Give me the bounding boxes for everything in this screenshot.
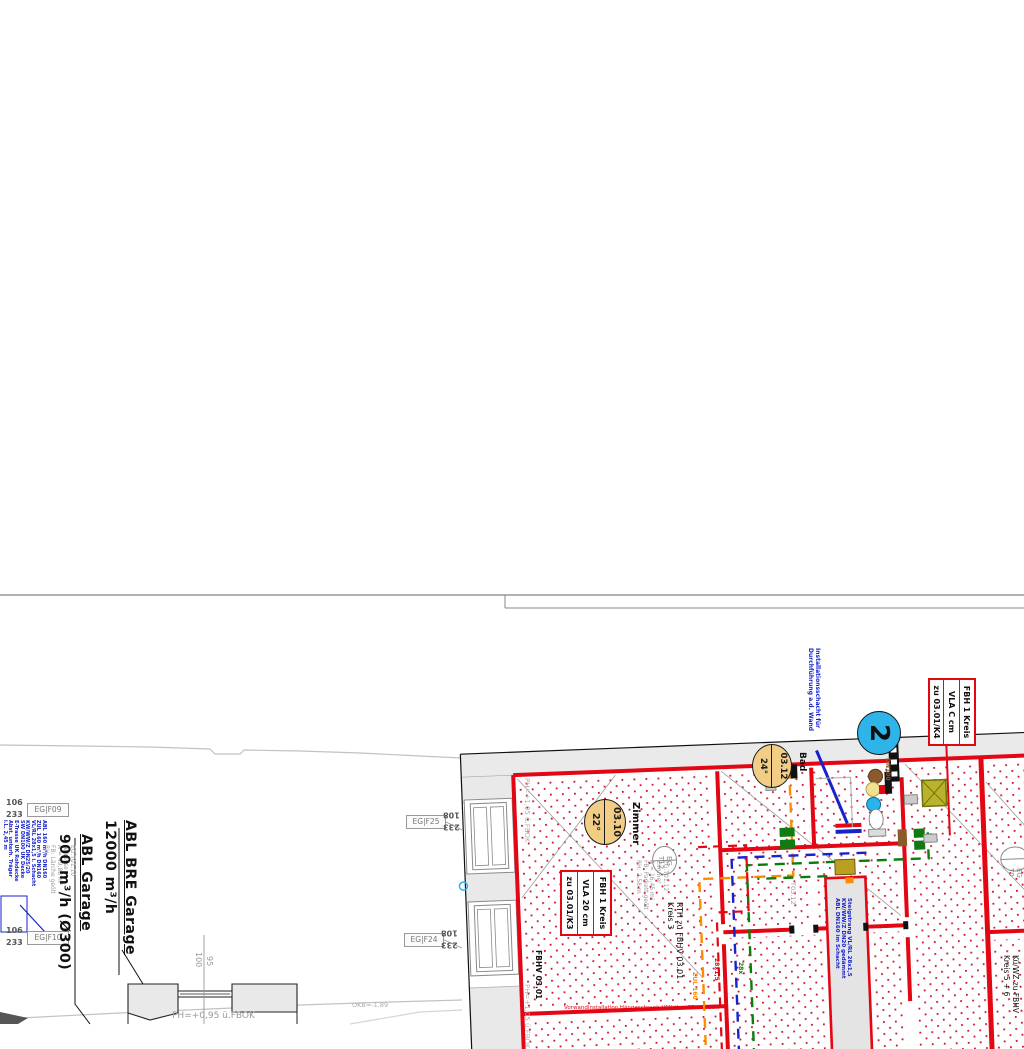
washbasin [866, 782, 881, 797]
f24-width: 108 [441, 928, 458, 937]
pipe-label-green: 28x [737, 962, 743, 974]
shower-olive [922, 780, 947, 807]
installation-note: Installationsschacht für Durchführung a.… [807, 648, 820, 731]
room-tag-bad: 03.12 24° [752, 744, 792, 788]
dim-100: 100 [193, 952, 202, 967]
f10-width: 106 [6, 927, 23, 936]
room-temp: 24° [753, 745, 772, 787]
abl-garage-label: ABL Garage [78, 834, 93, 931]
right-edge-circuit-note: Kü/WZ zu FBHV Kreis 5 + 6 [1002, 955, 1020, 1013]
door-tag-t12: EGT12 [657, 856, 672, 869]
pipe-brown [868, 769, 883, 784]
pipe-label-orange: ZUL 160 [691, 972, 697, 1000]
okb-note: OKB=-1,89 [352, 1002, 388, 1009]
shaft-tag: T03.12 [789, 882, 796, 905]
distributor-olive [835, 859, 856, 875]
building-linework [0, 0, 1024, 1044]
vorwand-note: Vorwandinstallation Hängeschrank HSK U=+… [564, 1006, 719, 1012]
shaft-risers-note: Steigstrang VL/RL 28x1,5 KW/WW/Z DN20 ge… [834, 898, 852, 979]
section-balloon-2: 2 [857, 711, 901, 755]
toilet [869, 809, 884, 830]
f10-height: 233 [6, 939, 23, 948]
f25-height: 233 [443, 822, 460, 831]
fbhv-manifold-label: FBHV 03.01 [534, 950, 542, 999]
abl-bre-garage-label: ABL BRE Garage [122, 820, 137, 955]
room-temp: 22° [585, 800, 605, 844]
abl-bre-flow-label: 12000 m³/h [102, 820, 117, 914]
f09-width: 106 [6, 799, 23, 808]
wall-height-note-2: PH=+1,05 ü.FBOK [522, 984, 530, 1049]
f24-height: 233 [441, 940, 458, 949]
room-name-bad: Bad [796, 752, 806, 771]
room-name-zimmer: Zimmer [629, 802, 640, 845]
room-number: 03.12 [772, 745, 791, 787]
room-tag-zimmer: 03.10 22° [584, 799, 626, 845]
abl-garage-flow-label: 900 m³/h (Ø300) [56, 834, 71, 970]
radiator-brown [898, 829, 908, 846]
pipe-label-red: 28x1,5 [713, 958, 719, 981]
f09-tag: EG|F09 [27, 803, 69, 817]
dim-95: 95 [204, 956, 213, 966]
fbh-circuit-box-1: FBH 1 Kreis VLA 20 cm zu 03.01/K3 [560, 870, 612, 936]
wall-height-note-1: PH=+1,05 ü.FBOK [522, 778, 530, 843]
left-duct-annotations: ABL 160 m³/h DN160ZUL 160 m³/h DN160 VL/… [1, 820, 46, 886]
dn100-label: DN100 [884, 758, 890, 781]
terrace-height-note: PH=+0,95 ü.FBOK [172, 1012, 255, 1022]
building-plan [0, 0, 1024, 1044]
f24-tag: EG|F24 [404, 933, 444, 947]
valve-green-4 [780, 839, 795, 849]
f09-height: 233 [6, 811, 23, 820]
f25-tag: EG|F25 [406, 815, 446, 829]
valve-green-1 [914, 828, 925, 837]
f25-width: 108 [443, 810, 460, 819]
room-number: 03.10 [605, 800, 625, 844]
valve-green-3 [779, 827, 794, 837]
rth-note: RTH zu FBHV 03.01 Kreis 3 [666, 902, 684, 979]
door-tag-t0: EGT0 [1007, 868, 1022, 878]
fbh-circuit-box-2: FBH 1 Kreis VLA C cm zu 03.01/K4 [928, 678, 976, 746]
plan-sheet: { "drawing": { "colors": { "wall_red": "… [0, 0, 1024, 1024]
